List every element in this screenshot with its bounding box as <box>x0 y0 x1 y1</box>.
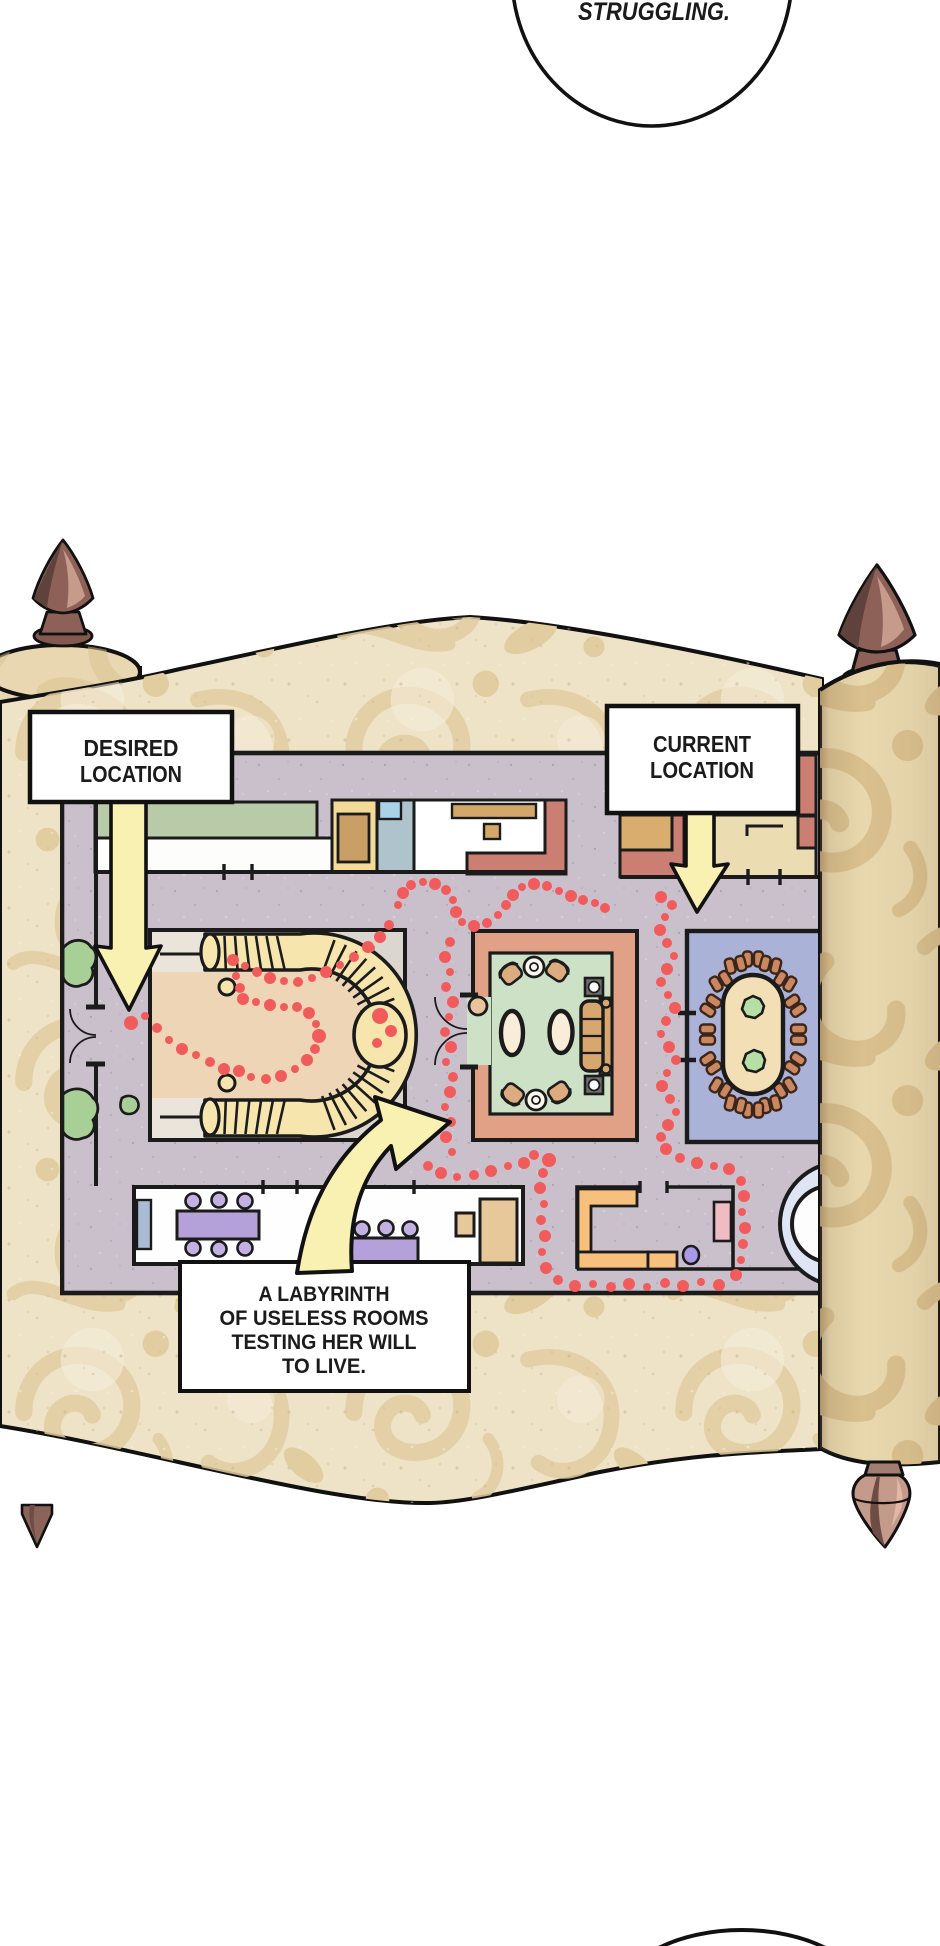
svg-text:TO LIVE.: TO LIVE. <box>282 1355 366 1378</box>
svg-text:A LABYRINTH: A LABYRINTH <box>259 1283 390 1306</box>
svg-text:LOCATION: LOCATION <box>650 757 754 783</box>
svg-text:CURRENT: CURRENT <box>653 731 751 757</box>
svg-text:DESIRED: DESIRED <box>84 735 179 761</box>
svg-text:TESTING HER WILL: TESTING HER WILL <box>232 1331 417 1354</box>
svg-text:OF USELESS ROOMS: OF USELESS ROOMS <box>220 1307 429 1330</box>
svg-text:LOCATION: LOCATION <box>80 761 182 787</box>
svg-text:STRUGGLING.: STRUGGLING. <box>578 0 730 26</box>
